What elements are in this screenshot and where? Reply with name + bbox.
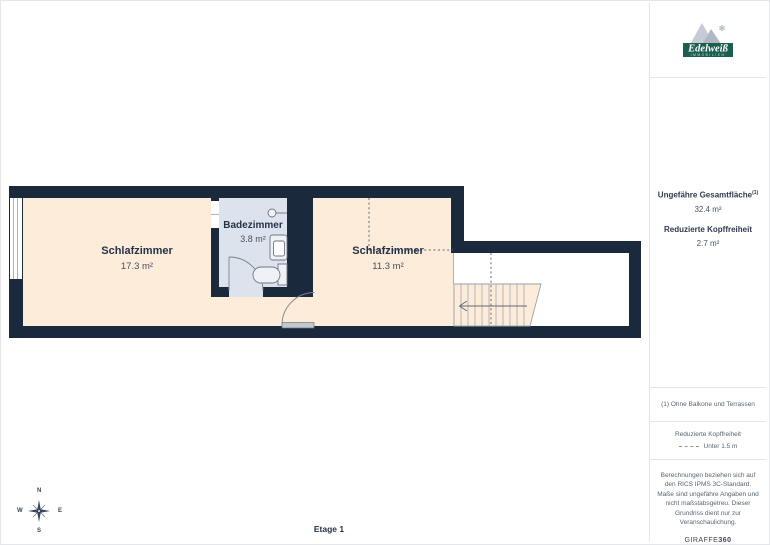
disclaimer-text: Berechnungen beziehen sich auf den RICS … bbox=[656, 471, 760, 528]
total-area-label: Ungefähre Gesamtfläche(1) bbox=[658, 190, 758, 200]
edelweiss-flower-icon: ✻ bbox=[719, 24, 726, 33]
sidebar: ✻ Edelweiß IMMOBILIEN Ungefähre Gesamtfl… bbox=[649, 3, 766, 541]
bathroom-doorway bbox=[229, 287, 263, 297]
compass-rose: N S W E bbox=[13, 488, 65, 536]
wall-bottom bbox=[9, 326, 641, 338]
wall-right bbox=[629, 241, 641, 338]
legend-section: Reduzierte Kopffreiheit Unter 1.5 m bbox=[650, 422, 766, 460]
logo-section: ✻ Edelweiß IMMOBILIEN bbox=[650, 3, 766, 78]
stairs bbox=[454, 253, 542, 326]
wall-right-section-top bbox=[451, 241, 641, 253]
logo-sub-text: IMMOBILIEN bbox=[691, 53, 726, 57]
footnote-section: (1) Ohne Balkone und Terrassen bbox=[650, 388, 766, 422]
floorplan: Schlafzimmer 17.3 m² Badezimmer 3.8 m² S… bbox=[1, 1, 649, 545]
room-label-schlafzimmer-1: Schlafzimmer 17.3 m² bbox=[62, 245, 212, 273]
total-area-footnote-marker: (1) bbox=[752, 190, 758, 196]
floorplan-page: Schlafzimmer 17.3 m² Badezimmer 3.8 m² S… bbox=[0, 0, 770, 545]
legend-title: Reduzierte Kopffreiheit bbox=[675, 431, 741, 438]
room-label-badezimmer: Badezimmer 3.8 m² bbox=[193, 220, 313, 245]
wall-top bbox=[9, 186, 464, 198]
room-area: 17.3 m² bbox=[62, 261, 212, 273]
reduced-headroom-value: 2.7 m² bbox=[697, 239, 720, 248]
giraffe360-brand: GIRAFFE360 bbox=[684, 537, 731, 544]
floor-label: Etage 1 bbox=[279, 524, 379, 534]
room-area: 3.8 m² bbox=[193, 234, 313, 245]
room-area: 11.3 m² bbox=[313, 261, 463, 273]
compass-star-icon bbox=[13, 488, 65, 536]
giraffe360-bold: 360 bbox=[718, 537, 731, 544]
edelweiss-logo: ✻ Edelweiß IMMOBILIEN bbox=[676, 18, 740, 62]
area-info-section: Ungefähre Gesamtfläche(1) 32.4 m² Reduzi… bbox=[650, 78, 766, 388]
room-label-schlafzimmer-2: Schlafzimmer 11.3 m² bbox=[313, 245, 463, 273]
total-area-value: 32.4 m² bbox=[694, 205, 721, 214]
footnote-text: (1) Ohne Balkone und Terrassen bbox=[661, 401, 755, 408]
room-name: Badezimmer bbox=[193, 220, 313, 233]
legend-dashed-line-icon bbox=[679, 446, 699, 447]
disclaimer-section: Berechnungen beziehen sich auf den RICS … bbox=[650, 460, 766, 544]
room-name: Schlafzimmer bbox=[62, 245, 212, 259]
stairs-arrow bbox=[460, 301, 528, 311]
giraffe360-normal: GIRAFFE bbox=[684, 537, 718, 544]
legend-item-label: Unter 1.5 m bbox=[704, 443, 738, 450]
room-name: Schlafzimmer bbox=[313, 245, 463, 259]
reduced-headroom-label: Reduzierte Kopffreiheit bbox=[664, 225, 752, 234]
window-left-wall bbox=[10, 198, 22, 279]
